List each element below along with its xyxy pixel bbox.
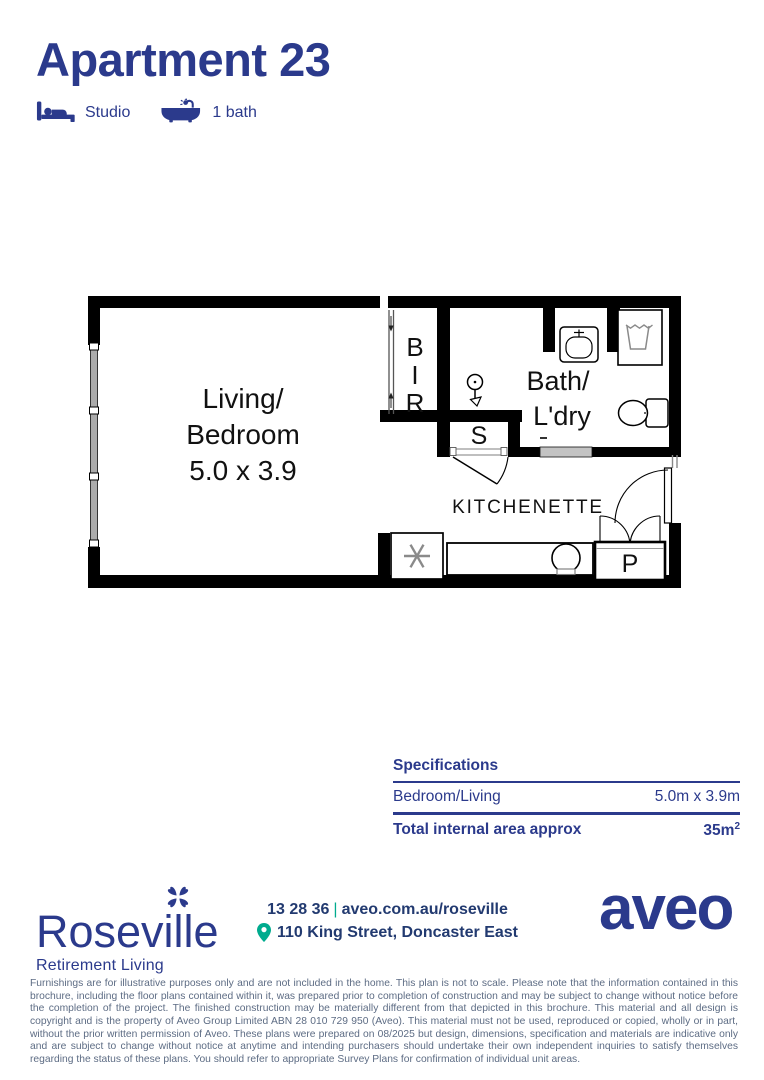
feature-studio-label: Studio [85, 104, 130, 122]
bed-icon [36, 99, 76, 128]
contact-line2: 110 King Street, Doncaster East [255, 922, 520, 943]
spec-total-value: 35m2 [703, 821, 740, 840]
phone-number: 13 28 36 [267, 901, 329, 918]
clover-icon [162, 883, 194, 916]
separator: | [329, 901, 341, 918]
specifications-table: Specifications Bedroom/Living 5.0m x 3.9… [393, 757, 740, 840]
contact-line1: 13 28 36|aveo.com.au/roseville [255, 899, 520, 920]
toilet-icon [619, 399, 669, 427]
feature-studio: Studio [36, 99, 130, 128]
shower-icon [468, 375, 483, 407]
entry-door [615, 455, 677, 523]
living-label-line1: Living/ [203, 383, 284, 414]
window [90, 343, 99, 547]
roseville-logo: Roseville Retirement Living [36, 883, 256, 975]
sliding-door [388, 310, 393, 414]
website-url[interactable]: aveo.com.au/roseville [342, 901, 508, 918]
aveo-logo: aveo [599, 878, 732, 940]
bir-label-r: R [406, 388, 425, 418]
vanity-sink-icon [560, 327, 598, 362]
pantry-label: P [622, 550, 639, 578]
community-tagline: Retirement Living [36, 957, 256, 975]
feature-bath: 1 bath [160, 98, 256, 128]
spec-row-label: Bedroom/Living [393, 788, 501, 806]
location-pin-icon [257, 923, 271, 942]
bir-label-i: I [411, 360, 418, 390]
bath-icon [160, 98, 203, 128]
brochure-page: Apartment 23 Studio [0, 0, 764, 1080]
spec-total-label: Total internal area approx [393, 821, 581, 840]
community-name: Roseville [36, 909, 256, 954]
spec-row-bedroom-living: Bedroom/Living 5.0m x 3.9m [393, 783, 740, 815]
feature-list: Studio [36, 98, 257, 128]
bath-label-line1: Bath/ [526, 366, 590, 396]
cooktop-icon [391, 533, 443, 579]
living-label-line2: Bedroom [186, 419, 300, 450]
page-title: Apartment 23 [36, 36, 330, 83]
kitchenette-label: KITCHENETTE [452, 497, 604, 518]
specifications-heading: Specifications [393, 757, 740, 783]
spec-total-row: Total internal area approx 35m2 [393, 815, 740, 840]
street-address: 110 King Street, Doncaster East [277, 922, 518, 943]
legal-disclaimer: Furnishings are for illustrative purpose… [30, 978, 738, 1066]
kitchen-bench [447, 543, 593, 575]
bir-label-b: B [406, 332, 423, 362]
living-dims-label: 5.0 x 3.9 [189, 455, 296, 486]
contact-block: 13 28 36|aveo.com.au/roseville 110 King … [255, 899, 520, 943]
bulkhead-wall [540, 447, 592, 457]
storage-label: S [471, 422, 488, 450]
feature-bath-label: 1 bath [212, 104, 256, 122]
laundry-tub-icon [618, 310, 662, 365]
storage-door [450, 448, 508, 485]
bath-label-line2: L'dry [533, 401, 591, 431]
spec-row-value: 5.0m x 3.9m [655, 788, 740, 806]
floorplan: Living/ Bedroom 5.0 x 3.9 B I R S Bath/ … [88, 296, 681, 588]
kitchen-sink-icon [552, 544, 580, 572]
